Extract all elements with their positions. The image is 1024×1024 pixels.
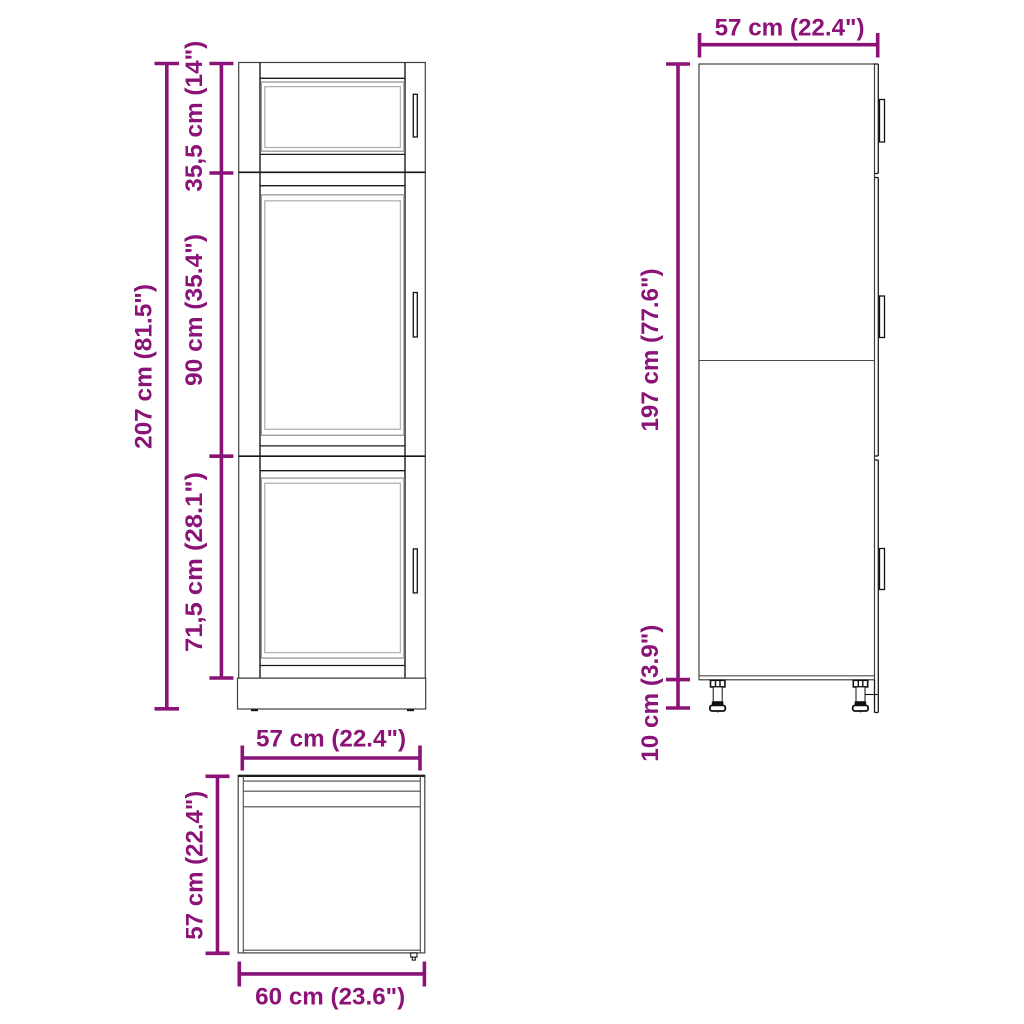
- svg-text:57 cm (22.4"): 57 cm (22.4"): [715, 14, 865, 41]
- svg-text:60 cm (23.6"): 60 cm (23.6"): [255, 984, 405, 1011]
- svg-text:57 cm (22.4"): 57 cm (22.4"): [182, 791, 209, 940]
- svg-text:207 cm (81.5"): 207 cm (81.5"): [131, 284, 158, 449]
- svg-text:197 cm (77.6"): 197 cm (77.6"): [637, 269, 664, 432]
- svg-text:35,5 cm (14"): 35,5 cm (14"): [181, 41, 208, 192]
- svg-text:90 cm (35.4"): 90 cm (35.4"): [181, 234, 208, 386]
- svg-text:57 cm (22.4"): 57 cm (22.4"): [256, 726, 406, 753]
- svg-text:10 cm (3.9"): 10 cm (3.9"): [637, 625, 664, 762]
- svg-text:71,5 cm (28.1"): 71,5 cm (28.1"): [181, 472, 208, 652]
